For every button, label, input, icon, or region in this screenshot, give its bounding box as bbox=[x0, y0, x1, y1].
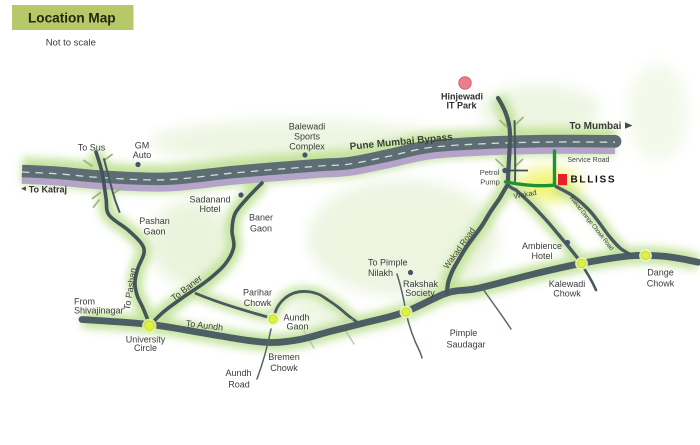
svg-text:Chowk: Chowk bbox=[647, 279, 675, 289]
svg-text:Location Map: Location Map bbox=[28, 11, 116, 26]
svg-text:To Sus: To Sus bbox=[78, 143, 106, 153]
svg-text:To Katraj: To Katraj bbox=[29, 185, 67, 195]
svg-text:Chowk: Chowk bbox=[553, 289, 581, 299]
svg-text:Saudagar: Saudagar bbox=[446, 340, 485, 350]
svg-text:Auto: Auto bbox=[133, 150, 152, 160]
svg-text:IT Park: IT Park bbox=[446, 101, 477, 111]
svg-text:Society: Society bbox=[405, 288, 435, 298]
svg-text:Hotel: Hotel bbox=[199, 204, 220, 214]
svg-text:Bremen: Bremen bbox=[268, 352, 300, 362]
svg-text:Not to scale: Not to scale bbox=[46, 38, 96, 49]
svg-text:Gaon: Gaon bbox=[286, 322, 308, 332]
svg-text:Road: Road bbox=[228, 380, 250, 390]
svg-text:Balewadi: Balewadi bbox=[289, 122, 326, 132]
svg-text:BLLISS: BLLISS bbox=[571, 175, 617, 186]
svg-text:Kalewadi: Kalewadi bbox=[549, 279, 586, 289]
svg-text:Chowk: Chowk bbox=[270, 363, 298, 373]
svg-text:Gaon: Gaon bbox=[143, 227, 165, 237]
svg-text:Sports: Sports bbox=[294, 132, 321, 142]
svg-text:Nilakh: Nilakh bbox=[368, 268, 393, 278]
svg-text:Baner: Baner bbox=[249, 213, 273, 223]
svg-text:To Mumbai: To Mumbai bbox=[569, 121, 621, 132]
svg-text:Aundh: Aundh bbox=[225, 368, 251, 378]
svg-text:Pashan: Pashan bbox=[139, 216, 170, 226]
svg-text:Parihar: Parihar bbox=[243, 288, 272, 298]
svg-text:Ambience: Ambience bbox=[522, 241, 562, 251]
svg-text:Shivajinagar: Shivajinagar bbox=[74, 306, 124, 316]
svg-text:Hotel: Hotel bbox=[531, 251, 552, 261]
svg-text:Petrol: Petrol bbox=[480, 168, 500, 177]
svg-text:Circle: Circle bbox=[134, 343, 157, 353]
svg-text:Gaon: Gaon bbox=[250, 224, 272, 234]
svg-text:Dange: Dange bbox=[647, 268, 674, 278]
svg-text:Pump: Pump bbox=[480, 178, 500, 187]
svg-text:Chowk: Chowk bbox=[244, 298, 272, 308]
svg-text:Sadanand: Sadanand bbox=[189, 195, 230, 205]
svg-text:Pimple: Pimple bbox=[450, 328, 478, 338]
svg-text:Complex: Complex bbox=[289, 142, 325, 152]
svg-text:To Pimple: To Pimple bbox=[368, 258, 408, 268]
svg-text:Service Road: Service Road bbox=[567, 157, 609, 164]
